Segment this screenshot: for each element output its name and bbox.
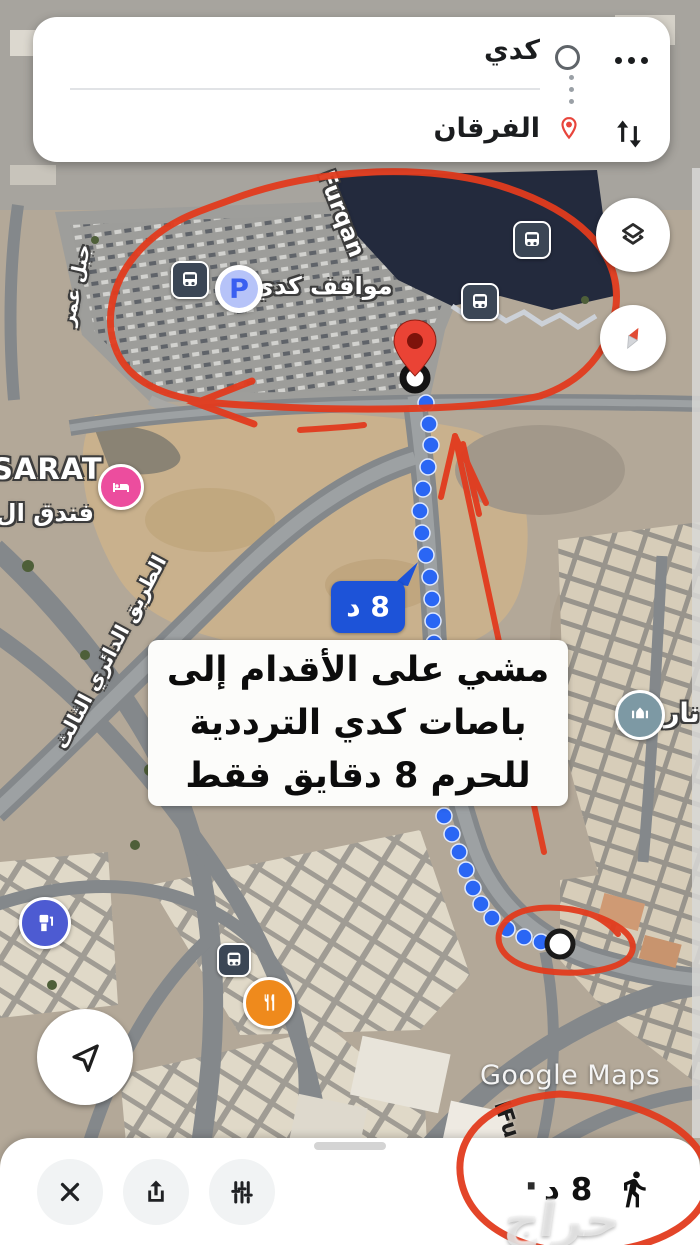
gas-station-icon[interactable] xyxy=(19,897,71,949)
note-line-2: باصات كدي الترددية xyxy=(148,697,568,750)
close-icon xyxy=(55,1177,85,1207)
bus-stop-icon[interactable] xyxy=(513,221,551,259)
compass-icon xyxy=(617,322,649,354)
bus-stop-icon[interactable] xyxy=(217,943,251,977)
destination-pin-icon xyxy=(556,115,582,145)
note-line-3: للحرم 8 دقايق فقط xyxy=(148,750,568,803)
fork-knife-icon xyxy=(256,990,282,1016)
note-line-1: مشي على الأقدام إلى xyxy=(148,644,568,697)
bus-stop-icon[interactable] xyxy=(171,261,209,299)
field-divider xyxy=(70,88,540,90)
mosque-icon[interactable] xyxy=(615,690,665,740)
fuel-pump-icon xyxy=(32,910,58,936)
route-options-button[interactable] xyxy=(209,1159,275,1225)
sheet-drag-handle[interactable] xyxy=(314,1142,386,1150)
annotation-note-box: مشي على الأقدام إلى باصات كدي الترددية ل… xyxy=(148,640,568,806)
navigation-arrow-icon xyxy=(63,1035,107,1079)
hotel-icon[interactable] xyxy=(98,464,144,510)
route-duration-flag[interactable]: 8 د xyxy=(331,581,405,633)
mosque-glyph xyxy=(627,702,653,728)
swap-fields-button[interactable] xyxy=(610,115,648,153)
layers-button[interactable] xyxy=(596,198,670,272)
route-dots-separator xyxy=(569,75,574,104)
route-card: كدي الفرقان xyxy=(33,17,670,162)
bed-icon xyxy=(109,475,133,499)
route-start-marker xyxy=(547,931,573,957)
bus-stop-icon[interactable] xyxy=(461,283,499,321)
share-icon xyxy=(141,1177,171,1207)
tune-icon xyxy=(227,1177,257,1207)
overflow-menu-button[interactable] xyxy=(615,57,648,64)
dot-icon xyxy=(628,57,635,64)
destination-pin[interactable] xyxy=(385,314,445,394)
my-location-button[interactable] xyxy=(37,1009,133,1105)
share-button[interactable] xyxy=(123,1159,189,1225)
site-watermark: حراج xyxy=(501,1192,624,1245)
destination-field[interactable]: الفرقان xyxy=(434,113,540,144)
parking-icon[interactable]: P xyxy=(215,265,263,313)
parking-letter: P xyxy=(229,274,249,305)
origin-dot-icon xyxy=(555,45,580,70)
dot-icon xyxy=(615,57,622,64)
compass-button[interactable] xyxy=(600,305,666,371)
layers-icon xyxy=(616,218,650,252)
origin-field[interactable]: كدي xyxy=(484,35,540,66)
restaurant-icon[interactable] xyxy=(243,977,295,1029)
dot-icon xyxy=(641,57,648,64)
maps-app-screen: مواقف كدي Furqan SARAT فندق ال... الطريق… xyxy=(0,0,700,1245)
close-button[interactable] xyxy=(37,1159,103,1225)
